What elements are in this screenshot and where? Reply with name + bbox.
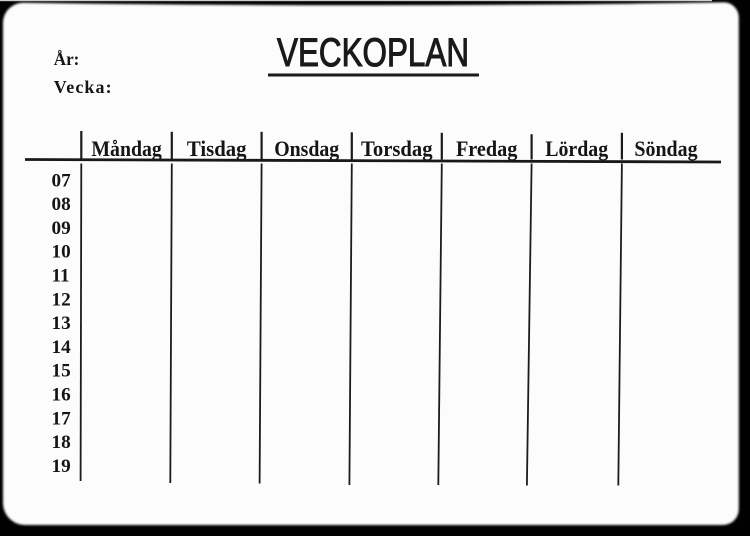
svg-text:17: 17: [52, 408, 72, 429]
svg-text:19: 19: [52, 456, 71, 477]
svg-text:15: 15: [52, 361, 71, 382]
svg-text:12: 12: [52, 289, 71, 310]
svg-text:11: 11: [52, 266, 70, 287]
svg-text:Torsdag: Torsdag: [361, 136, 433, 161]
svg-text:Tisdag: Tisdag: [187, 136, 247, 161]
svg-text:Söndag: Söndag: [634, 136, 698, 161]
svg-text:10: 10: [52, 242, 71, 263]
svg-text:VECKOPLAN: VECKOPLAN: [277, 31, 469, 75]
svg-text:Fredag: Fredag: [456, 136, 518, 161]
svg-text:Måndag: Måndag: [91, 136, 162, 161]
svg-text:År:: År:: [54, 49, 80, 69]
svg-text:13: 13: [52, 313, 71, 334]
svg-text:07: 07: [52, 170, 72, 191]
svg-text:Onsdag: Onsdag: [274, 136, 340, 161]
svg-text:18: 18: [52, 432, 71, 453]
svg-text:14: 14: [52, 337, 72, 358]
svg-text:08: 08: [52, 194, 71, 215]
svg-text:Lördag: Lördag: [545, 136, 609, 161]
svg-text:09: 09: [52, 218, 71, 239]
svg-text:16: 16: [52, 385, 72, 406]
svg-text:Vecka:: Vecka:: [54, 77, 113, 97]
